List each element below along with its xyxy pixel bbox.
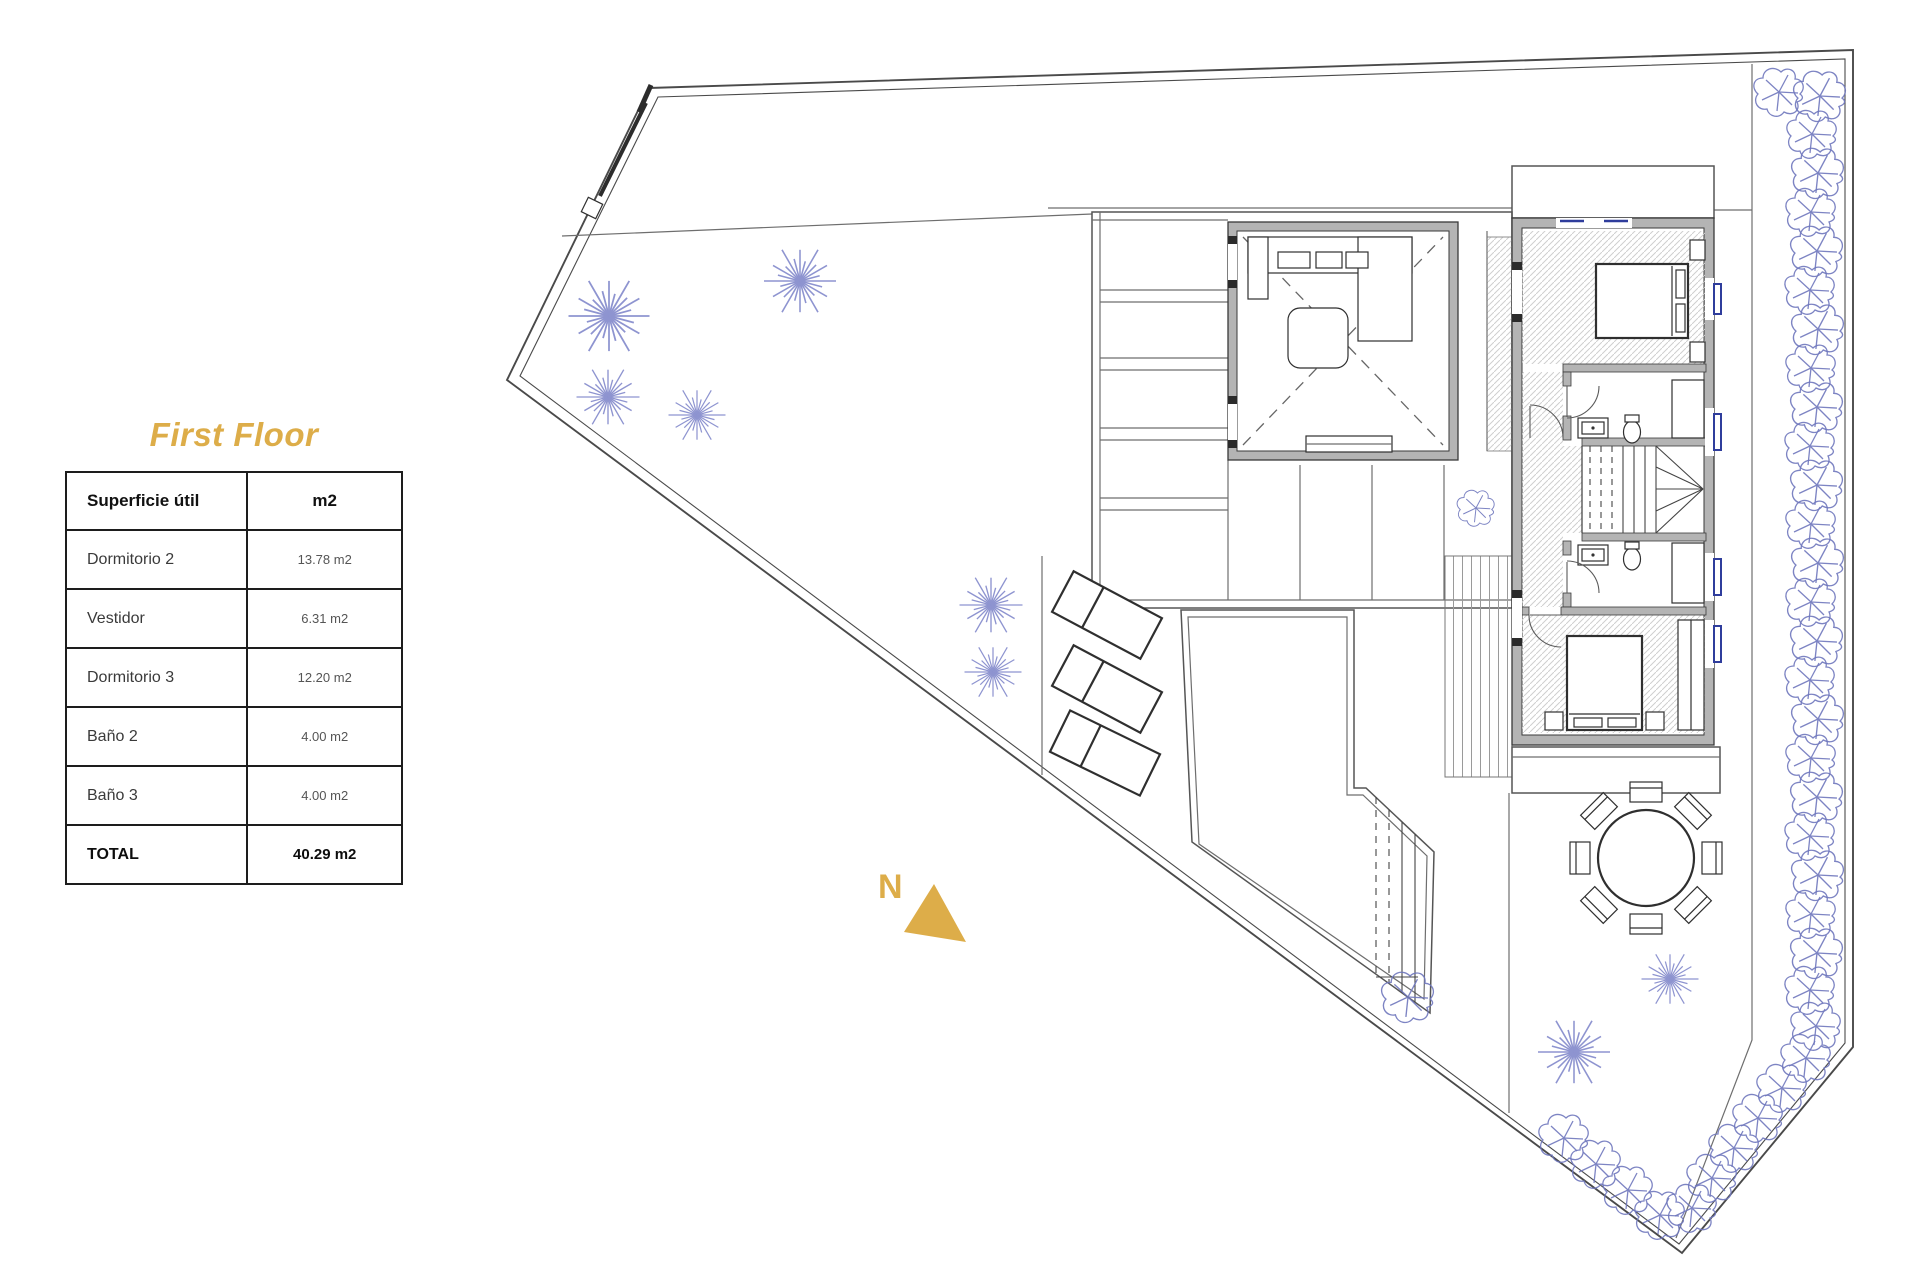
north-arrow: N <box>878 868 966 942</box>
nightstand <box>1646 712 1664 730</box>
floor-plan-page: First Floor Superficie útil m2 Dormitori… <box>0 0 1920 1280</box>
nightstand <box>1690 240 1705 260</box>
void-room <box>1228 222 1458 460</box>
shower <box>1672 380 1704 438</box>
north-arrow-icon <box>904 884 966 942</box>
bedroom-wing <box>1512 166 1721 745</box>
shower <box>1672 543 1704 603</box>
coffee-table <box>1288 308 1348 368</box>
nightstand <box>1690 342 1705 362</box>
floor-plan-drawing: N <box>0 0 1920 1280</box>
north-label: N <box>878 868 903 906</box>
bed <box>1567 636 1642 730</box>
nightstand <box>1545 712 1563 730</box>
deck-steps <box>1445 556 1512 777</box>
bed <box>1596 264 1688 338</box>
round-table <box>1598 810 1694 906</box>
toilet <box>1624 415 1641 443</box>
toilet <box>1624 542 1641 570</box>
